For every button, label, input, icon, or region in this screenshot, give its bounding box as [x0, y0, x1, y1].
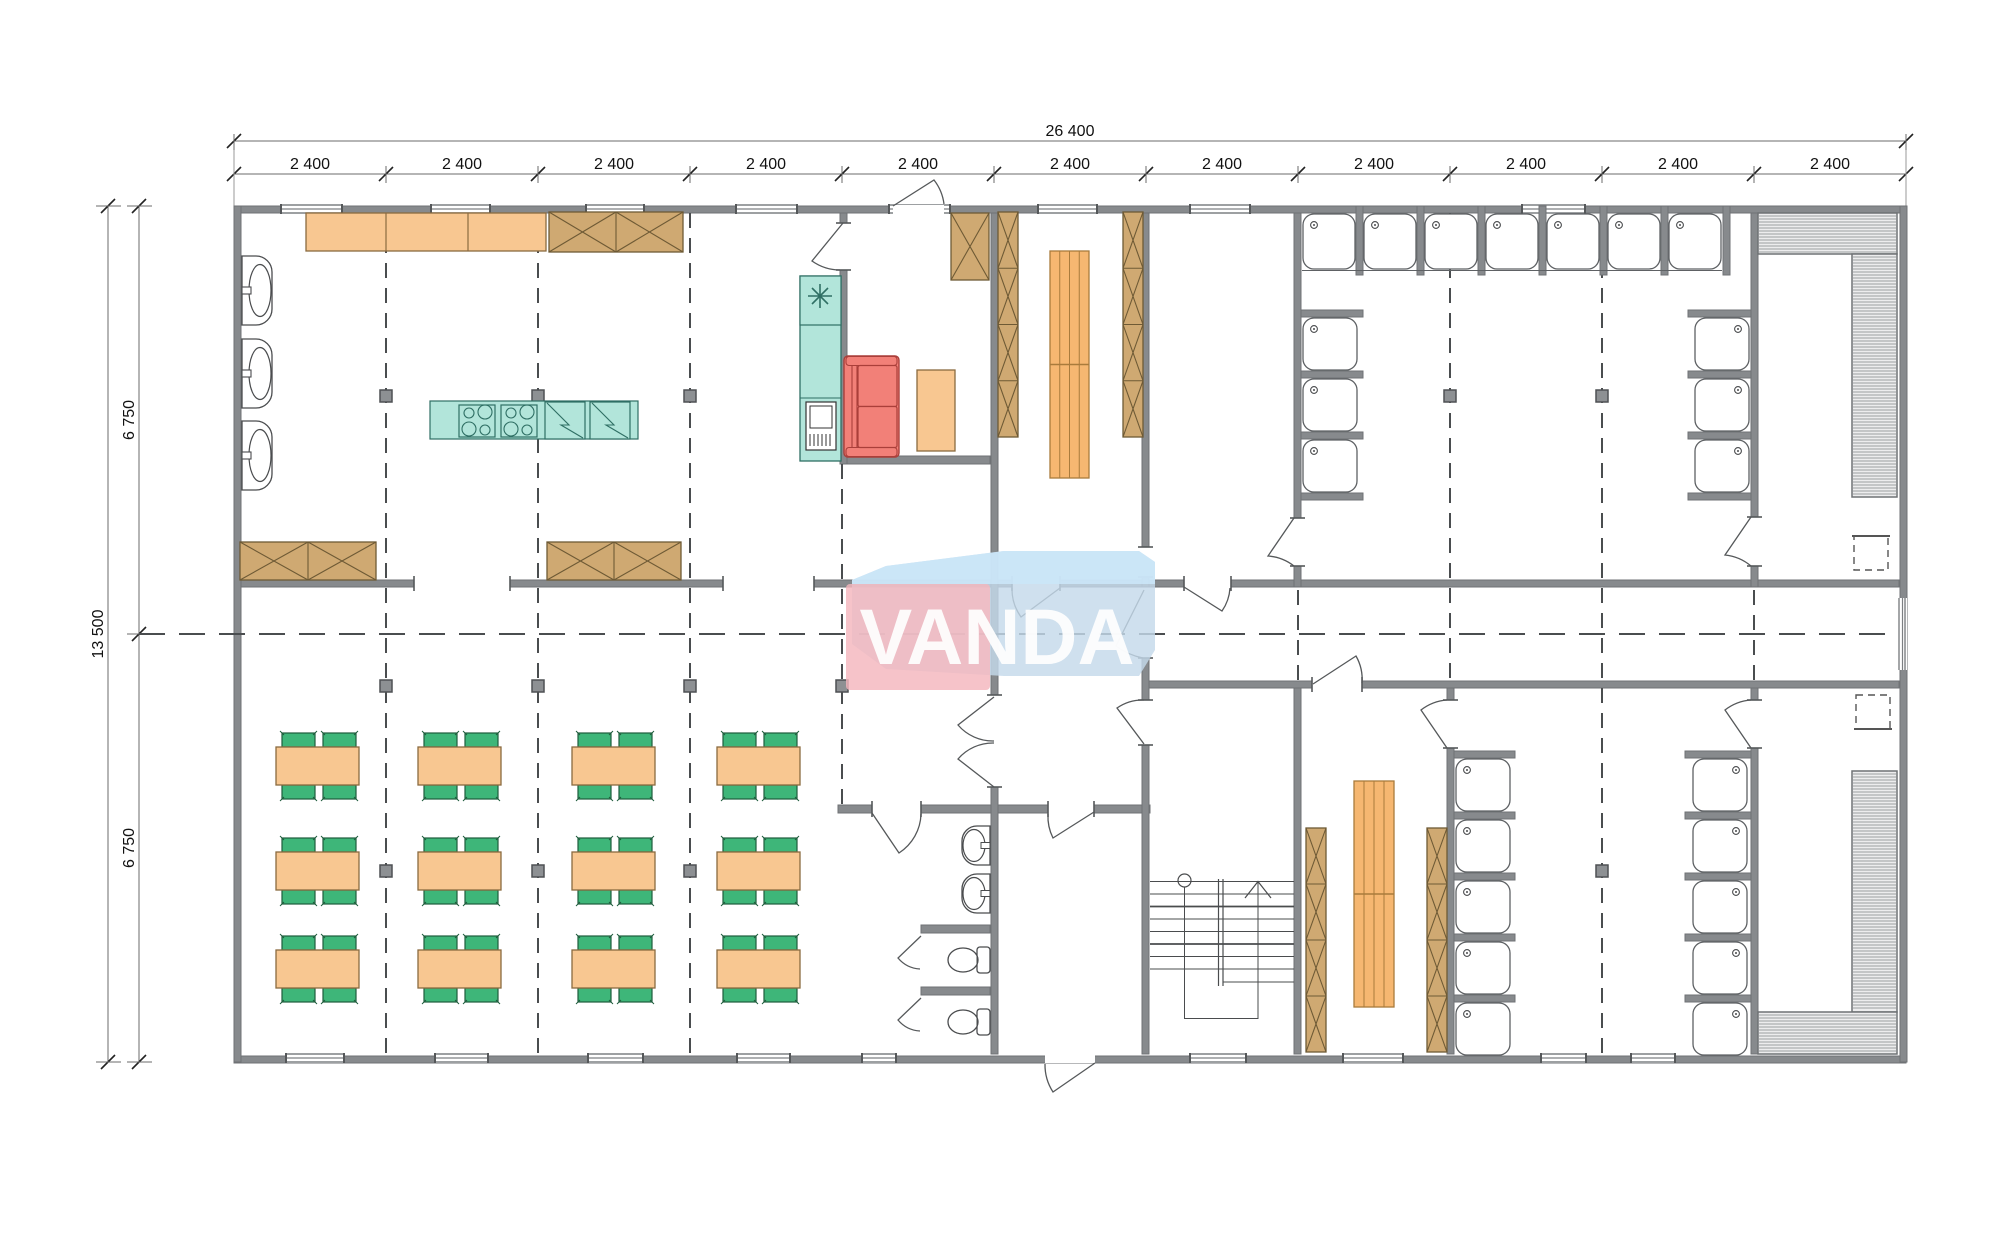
- svg-text:2 400: 2 400: [1202, 156, 1242, 173]
- svg-text:2 400: 2 400: [746, 156, 786, 173]
- svg-text:2 400: 2 400: [1810, 156, 1850, 173]
- svg-text:2 400: 2 400: [1050, 156, 1090, 173]
- svg-text:6 750: 6 750: [121, 400, 138, 440]
- svg-text:2 400: 2 400: [898, 156, 938, 173]
- svg-text:2 400: 2 400: [442, 156, 482, 173]
- svg-text:2 400: 2 400: [1658, 156, 1698, 173]
- svg-text:6 750: 6 750: [121, 828, 138, 868]
- svg-text:2 400: 2 400: [1506, 156, 1546, 173]
- svg-text:2 400: 2 400: [1354, 156, 1394, 173]
- svg-text:2 400: 2 400: [290, 156, 330, 173]
- svg-text:2 400: 2 400: [594, 156, 634, 173]
- svg-text:26 400: 26 400: [1046, 123, 1095, 140]
- svg-text:13 500: 13 500: [90, 609, 107, 658]
- svg-text:VANDA: VANDA: [859, 592, 1134, 681]
